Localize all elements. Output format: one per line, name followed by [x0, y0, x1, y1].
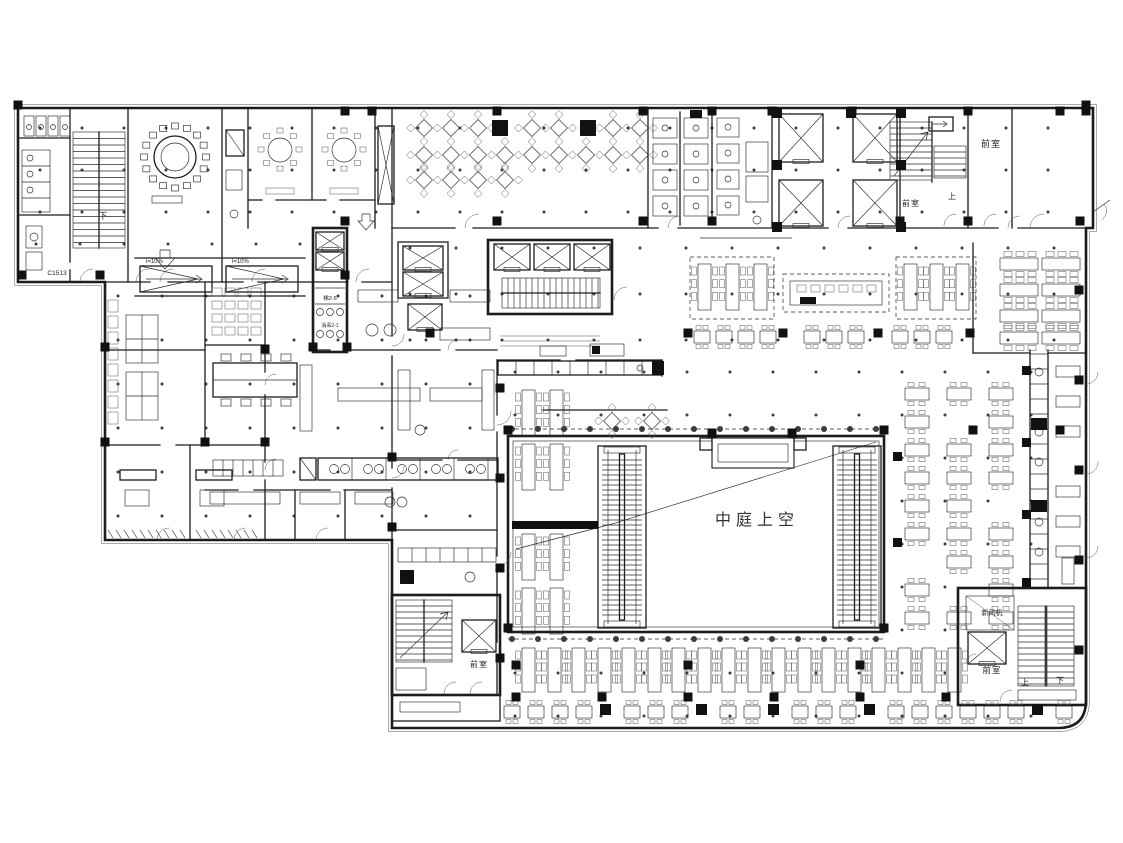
floor-plan-drawing[interactable]: 中庭上空 前室 前室 前室 前室 新风机 上 上 下 下 i=10% i=10%… — [0, 0, 1123, 843]
fresh-air-unit-label: 新风机 — [982, 608, 1003, 617]
atrium-void-label: 中庭上空 — [715, 511, 799, 529]
ceiling-dot-grid — [35, 127, 1056, 718]
up-label-top-right: 上 — [948, 192, 956, 201]
stair-elevator-cores — [73, 114, 1086, 721]
anteroom-label-bottom-left: 前室 — [470, 659, 488, 669]
service-lift-tag-label: 梯2-5 — [323, 294, 336, 302]
door-tag-label: C1513 — [47, 270, 67, 277]
anteroom-label-top-right-2: 前室 — [902, 198, 920, 208]
disinfect-room-tag-label: 消毒2-1 — [321, 322, 338, 329]
anteroom-label-bottom-right: 前室 — [982, 665, 1001, 675]
room-labels: 中庭上空 前室 前室 前室 前室 新风机 上 上 下 下 i=10% i=10%… — [47, 138, 1064, 687]
ramp-slope-label-1: i=10% — [146, 259, 164, 265]
up-label-bottom-right: 上 — [1021, 678, 1029, 687]
anteroom-label-top-right-1: 前室 — [981, 138, 1001, 149]
floor-plan-canvas[interactable]: 中庭上空 前室 前室 前室 前室 新风机 上 上 下 下 i=10% i=10%… — [0, 0, 1123, 843]
ramp-slope-label-2: i=10% — [232, 259, 250, 265]
down-label-top-left: 下 — [98, 211, 107, 221]
down-label-bottom-right: 下 — [1056, 676, 1064, 685]
